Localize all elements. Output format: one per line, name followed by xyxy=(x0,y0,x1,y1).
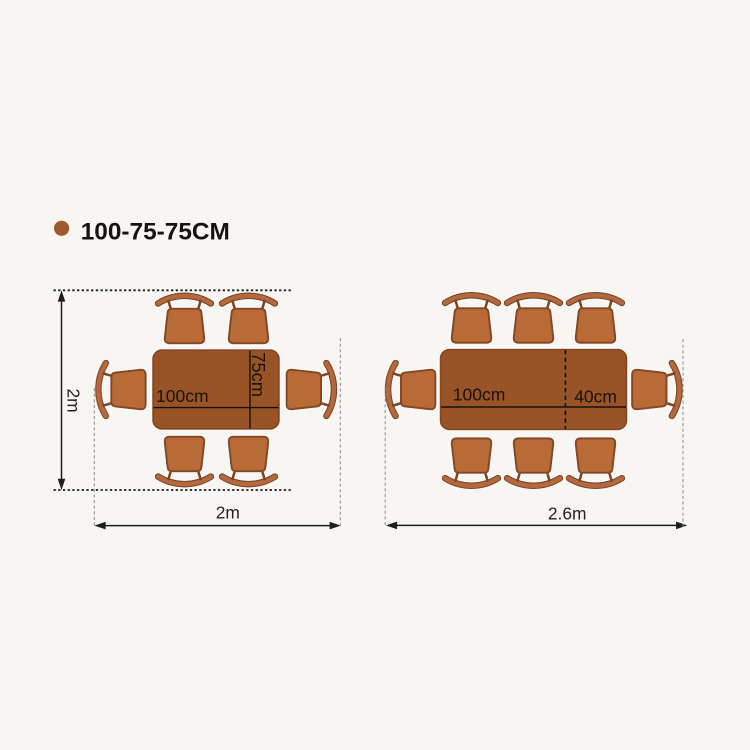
svg-text:2m: 2m xyxy=(63,389,83,413)
svg-text:100cm: 100cm xyxy=(453,385,506,405)
svg-text:40cm: 40cm xyxy=(574,386,617,406)
svg-text:75cm: 75cm xyxy=(248,352,268,396)
svg-text:2m: 2m xyxy=(216,502,240,522)
svg-text:100-75-75CM: 100-75-75CM xyxy=(81,219,230,246)
svg-text:2.6m: 2.6m xyxy=(548,503,587,523)
svg-text:100cm: 100cm xyxy=(156,386,209,406)
